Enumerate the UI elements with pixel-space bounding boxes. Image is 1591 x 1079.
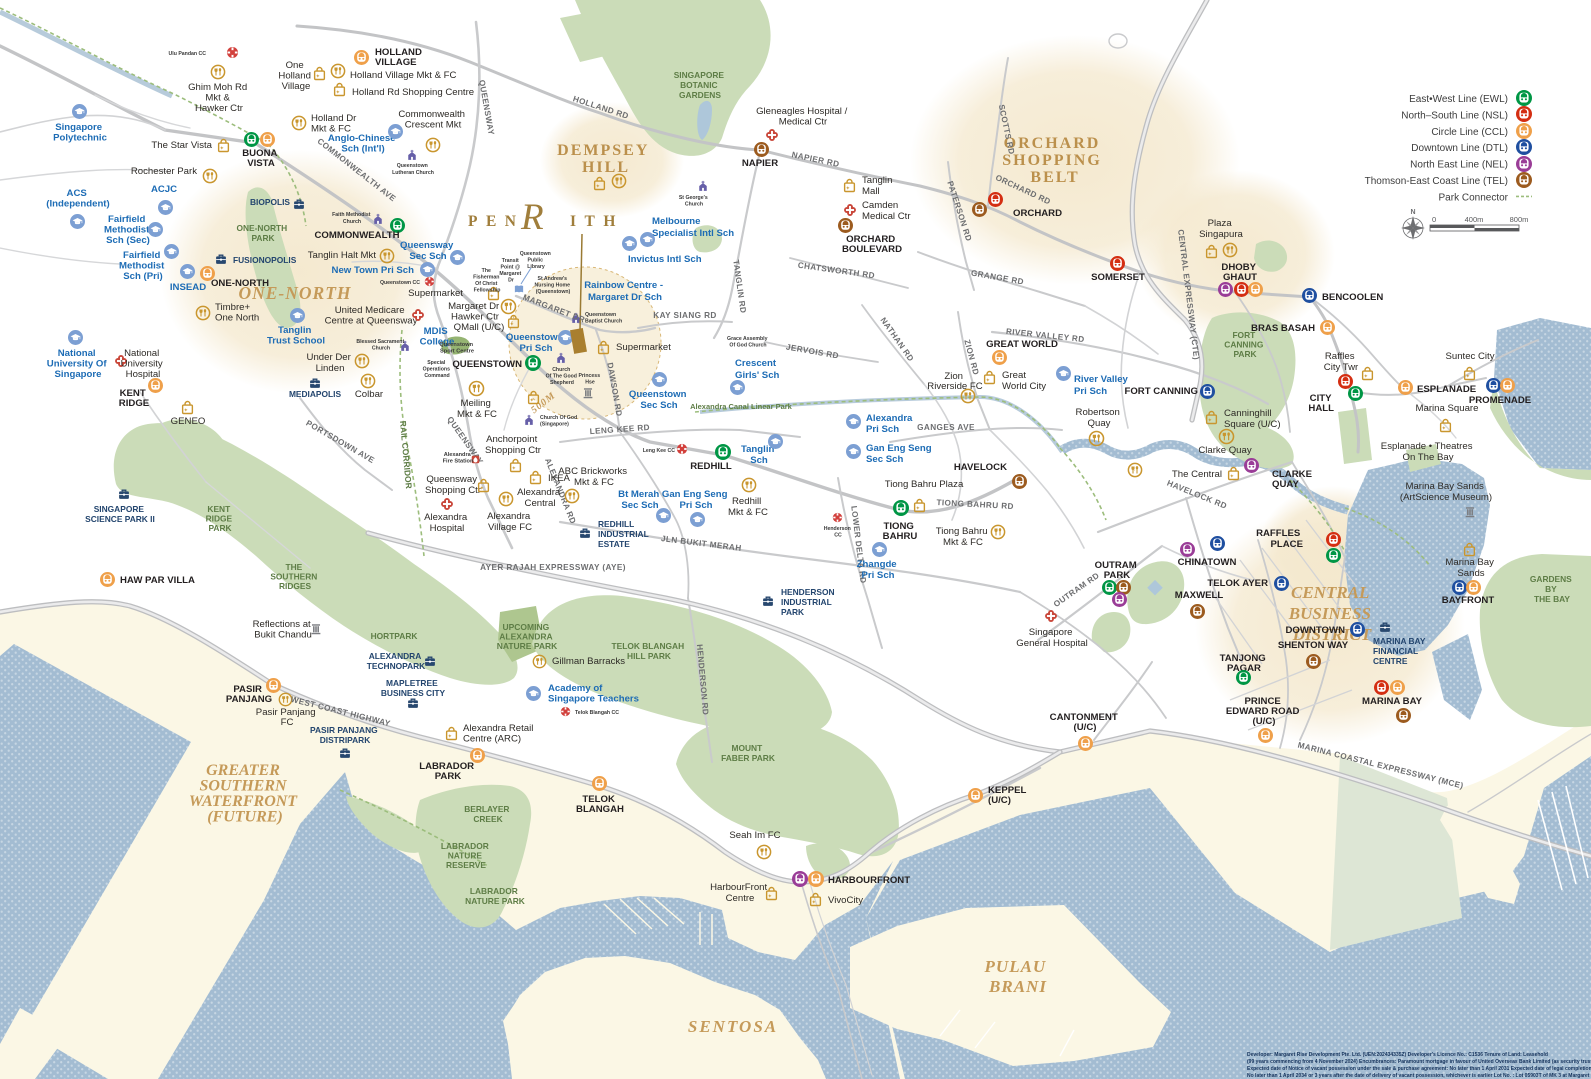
svg-text:GREAT WORLD: GREAT WORLD — [986, 339, 1058, 350]
svg-text:Grace Assembly Of God Church: Grace Assembly Of God Church — [727, 336, 769, 349]
svg-text:R: R — [520, 197, 544, 238]
svg-text:Alexandra Canal Linear Park: Alexandra Canal Linear Park — [690, 402, 793, 411]
svg-text:Tanglin Halt Mkt: Tanglin Halt Mkt — [308, 250, 377, 261]
svg-text:SHENTON WAY: SHENTON WAY — [1278, 640, 1349, 651]
svg-text:0: 0 — [1432, 215, 1436, 224]
svg-text:QUEENSTOWN: QUEENSTOWN — [452, 359, 522, 370]
svg-text:KENT RIDGE: KENT RIDGE — [119, 388, 150, 409]
svg-text:Alexandra Village FC: Alexandra Village FC — [487, 511, 533, 533]
svg-text:PEN: PEN — [468, 213, 525, 230]
svg-text:Reflections at Bukit Chandu: Reflections at Bukit Chandu — [253, 619, 314, 641]
svg-text:Marina Square: Marina Square — [1416, 403, 1479, 414]
svg-text:MEDIAPOLIS: MEDIAPOLIS — [289, 389, 342, 399]
svg-text:ORCHARD: ORCHARD — [1013, 208, 1062, 219]
svg-text:CITY HALL: CITY HALL — [1308, 393, 1334, 414]
svg-text:Seah Im FC: Seah Im FC — [729, 830, 780, 841]
svg-text:Redhill Mkt & FC: Redhill Mkt & FC — [728, 496, 768, 518]
svg-text:DOWNTOWN: DOWNTOWN — [1285, 625, 1345, 636]
svg-text:Margaret Dr Hawker Ctr: Margaret Dr Hawker Ctr — [448, 301, 502, 323]
svg-text:Developer: Margaret Rise Devel: Developer: Margaret Rise Development Pte… — [1247, 1052, 1548, 1058]
svg-text:BENCOOLEN: BENCOOLEN — [1322, 292, 1383, 303]
svg-text:ESPLANADE: ESPLANADE — [1417, 384, 1477, 395]
svg-text:ALEXANDRA TECHNOPARK: ALEXANDRA TECHNOPARK — [367, 651, 425, 671]
svg-text:Holland Village Mkt & FC: Holland Village Mkt & FC — [350, 70, 457, 81]
svg-text:ACJC: ACJC — [151, 184, 177, 195]
svg-text:GENEO: GENEO — [171, 416, 206, 427]
svg-text:LABRADOR NATURE PARK: LABRADOR NATURE PARK — [465, 886, 525, 906]
svg-text:Rainbow Centre - Margaret Dr S: Rainbow Centre - Margaret Dr Sch — [584, 280, 666, 303]
svg-text:Leng Kee CC: Leng Kee CC — [643, 448, 676, 454]
svg-text:Bt Merah Sec Sch: Bt Merah Sec Sch — [618, 489, 662, 511]
svg-text:Commonwealth Crescent Mkt: Commonwealth Crescent Mkt — [398, 109, 467, 131]
svg-text:Rochester Park: Rochester Park — [131, 166, 197, 177]
svg-text:Queensway Shopping Ctr: Queensway Shopping Ctr — [425, 474, 482, 496]
svg-text:BAYFRONT: BAYFRONT — [1442, 595, 1495, 606]
svg-text:Downtown Line (DTL): Downtown Line (DTL) — [1411, 143, 1508, 154]
svg-text:DHOBY GHAUT: DHOBY GHAUT — [1221, 262, 1258, 283]
svg-text:Queenstown Sport Centre: Queenstown Sport Centre — [439, 342, 474, 355]
svg-text:HORTPARK: HORTPARK — [371, 631, 418, 641]
svg-text:(99 years commencing from 4 No: (99 years commencing from 4 November 202… — [1247, 1059, 1591, 1065]
svg-text:MAXWELL: MAXWELL — [1175, 590, 1224, 601]
svg-text:Circle Line (CCL): Circle Line (CCL) — [1431, 127, 1508, 138]
svg-text:North East Line (NEL): North East Line (NEL) — [1410, 160, 1508, 171]
svg-text:St Andrew's Nursing Home (Quee: St Andrew's Nursing Home (Queenstown) — [535, 276, 572, 295]
svg-text:SOMERSET: SOMERSET — [1091, 272, 1145, 283]
svg-text:Suntec City: Suntec City — [1445, 351, 1494, 362]
svg-text:Singapore Polytechnic: Singapore Polytechnic — [53, 122, 108, 144]
svg-text:QMall (U/C): QMall (U/C) — [454, 322, 505, 333]
svg-text:BUONA VISTA: BUONA VISTA — [242, 148, 280, 169]
svg-text:Telok Blangah CC: Telok Blangah CC — [575, 710, 619, 716]
svg-text:MAPLETREE BUSINESS CITY: MAPLETREE BUSINESS CITY — [381, 678, 446, 698]
svg-text:Queenstown Baptist Church: Queenstown Baptist Church — [585, 312, 622, 325]
svg-text:Clarke Quay: Clarke Quay — [1198, 445, 1252, 456]
svg-text:Invictus Intl Sch: Invictus Intl Sch — [628, 254, 702, 265]
svg-text:VivoCity: VivoCity — [828, 895, 863, 906]
svg-text:Raffles City Twr: Raffles City Twr — [1324, 351, 1359, 373]
svg-text:Holland Rd Shopping Centre: Holland Rd Shopping Centre — [352, 87, 474, 98]
svg-text:The Central: The Central — [1172, 469, 1222, 480]
svg-text:Ulu Pandan CC: Ulu Pandan CC — [169, 51, 207, 57]
svg-text:Marina Bay Sands (ArtScience M: Marina Bay Sands (ArtScience Museum) — [1400, 481, 1492, 503]
svg-text:Alexandra Hospital: Alexandra Hospital — [424, 512, 470, 534]
svg-text:Canninghill Square (U/C): Canninghill Square (U/C) — [1224, 408, 1281, 430]
svg-text:Queenstown CC: Queenstown CC — [380, 280, 420, 286]
svg-text:SINGAPORE BOTANIC GARDENS: SINGAPORE BOTANIC GARDENS — [674, 70, 727, 100]
svg-text:United Medicare Centre at Quee: United Medicare Centre at Queensway — [325, 305, 418, 327]
svg-text:KENT RIDGE PARK: KENT RIDGE PARK — [206, 504, 235, 533]
svg-text:Meiling Mkt & FC: Meiling Mkt & FC — [457, 398, 497, 420]
svg-text:FORT CANNING: FORT CANNING — [1124, 386, 1198, 397]
svg-text:North–South Line (NSL): North–South Line (NSL) — [1401, 110, 1508, 121]
svg-text:ORCHARD BOULEVARD: ORCHARD BOULEVARD — [842, 234, 902, 255]
svg-text:Anchorpoint Shopping Ctr: Anchorpoint Shopping Ctr — [485, 434, 542, 456]
svg-text:N: N — [1410, 209, 1415, 216]
svg-text:Crescent Girls' Sch: Crescent Girls' Sch — [735, 358, 780, 381]
svg-text:CHINATOWN: CHINATOWN — [1178, 557, 1237, 568]
svg-text:East•West Line (EWL): East•West Line (EWL) — [1409, 94, 1508, 105]
svg-text:GANGES AVE: GANGES AVE — [917, 423, 975, 432]
svg-text:PASIR PANJANG DISTRIPARK: PASIR PANJANG DISTRIPARK — [310, 725, 380, 745]
svg-text:LABRADOR NATURE RESERVE: LABRADOR NATURE RESERVE — [441, 841, 491, 870]
svg-text:ONE-NORTH: ONE-NORTH — [238, 283, 351, 303]
svg-text:National University Hospital: National University Hospital — [121, 348, 166, 380]
svg-text:SENTOSA: SENTOSA — [688, 1017, 778, 1036]
svg-text:400m: 400m — [1465, 215, 1484, 224]
svg-text:TIONG BAHRU: TIONG BAHRU — [883, 521, 918, 542]
svg-text:SINGAPORE SCIENCE PARK II: SINGAPORE SCIENCE PARK II — [85, 504, 155, 524]
svg-text:Park Connector: Park Connector — [1439, 192, 1509, 203]
svg-text:REDHILL: REDHILL — [690, 461, 732, 472]
svg-text:Tiong Bahru Plaza: Tiong Bahru Plaza — [885, 479, 964, 490]
svg-text:Queenstown Lutheran Church: Queenstown Lutheran Church — [392, 163, 434, 176]
svg-text:800m: 800m — [1510, 215, 1529, 224]
svg-text:PULAU BRANI: PULAU BRANI — [984, 957, 1052, 996]
svg-text:Supermarket: Supermarket — [616, 342, 671, 353]
svg-text:MARINA BAY: MARINA BAY — [1362, 696, 1423, 707]
svg-text:BRAS BASAH: BRAS BASAH — [1251, 323, 1315, 334]
svg-text:No later than 1 April 2034 or: No later than 1 April 2034 or 3 years af… — [1247, 1073, 1591, 1079]
svg-text:IKEA: IKEA — [548, 473, 570, 484]
svg-text:HARBOURFRONT: HARBOURFRONT — [828, 875, 910, 886]
svg-text:Zhangde Pri Sch: Zhangde Pri Sch — [857, 559, 900, 581]
svg-text:HAW PAR VILLA: HAW PAR VILLA — [120, 575, 195, 586]
svg-text:HAVELOCK: HAVELOCK — [954, 462, 1007, 473]
svg-text:Expected date of Notice of vac: Expected date of Notice of vacant posses… — [1247, 1066, 1591, 1072]
svg-text:KAY SIANG RD: KAY SIANG RD — [653, 311, 717, 320]
svg-text:NAPIER: NAPIER — [742, 158, 778, 169]
svg-text:The Star Vista: The Star Vista — [151, 140, 212, 151]
svg-text:Timbre+ One North: Timbre+ One North — [215, 302, 259, 324]
svg-text:Alexandra Fire Station: Alexandra Fire Station — [443, 452, 474, 465]
svg-text:Supermarket: Supermarket — [408, 288, 463, 299]
svg-text:BIOPOLIS: BIOPOLIS — [250, 197, 290, 207]
svg-text:Fairfield Methodist Sch (Pri): Fairfield Methodist Sch (Pri) — [119, 250, 167, 282]
svg-text:ITH: ITH — [570, 213, 624, 230]
svg-text:TELOK BLANGAH: TELOK BLANGAH — [576, 794, 624, 815]
svg-text:TELOK AYER: TELOK AYER — [1207, 578, 1268, 589]
svg-text:Gillman Barracks: Gillman Barracks — [552, 656, 625, 667]
svg-text:Thomson-East Coast Line (TEL): Thomson-East Coast Line (TEL) — [1365, 176, 1508, 187]
svg-text:AYER RAJAH EXPRESSWAY (AYE): AYER RAJAH EXPRESSWAY (AYE) — [480, 563, 626, 572]
svg-text:New Town Pri Sch: New Town Pri Sch — [332, 265, 415, 276]
svg-text:Tiong Bahru Mkt & FC: Tiong Bahru Mkt & FC — [936, 526, 991, 548]
svg-text:INSEAD: INSEAD — [170, 282, 206, 293]
svg-text:UPCOMING ALEXANDRA NATURE PARK: UPCOMING ALEXANDRA NATURE PARK — [497, 622, 558, 651]
svg-text:Fairfield Methodist Sch (Sec): Fairfield Methodist Sch (Sec) — [104, 214, 152, 246]
svg-text:COMMONWEALTH: COMMONWEALTH — [314, 230, 399, 241]
svg-text:Colbar: Colbar — [355, 389, 384, 400]
svg-text:FUSIONOPOLIS: FUSIONOPOLIS — [233, 255, 297, 265]
